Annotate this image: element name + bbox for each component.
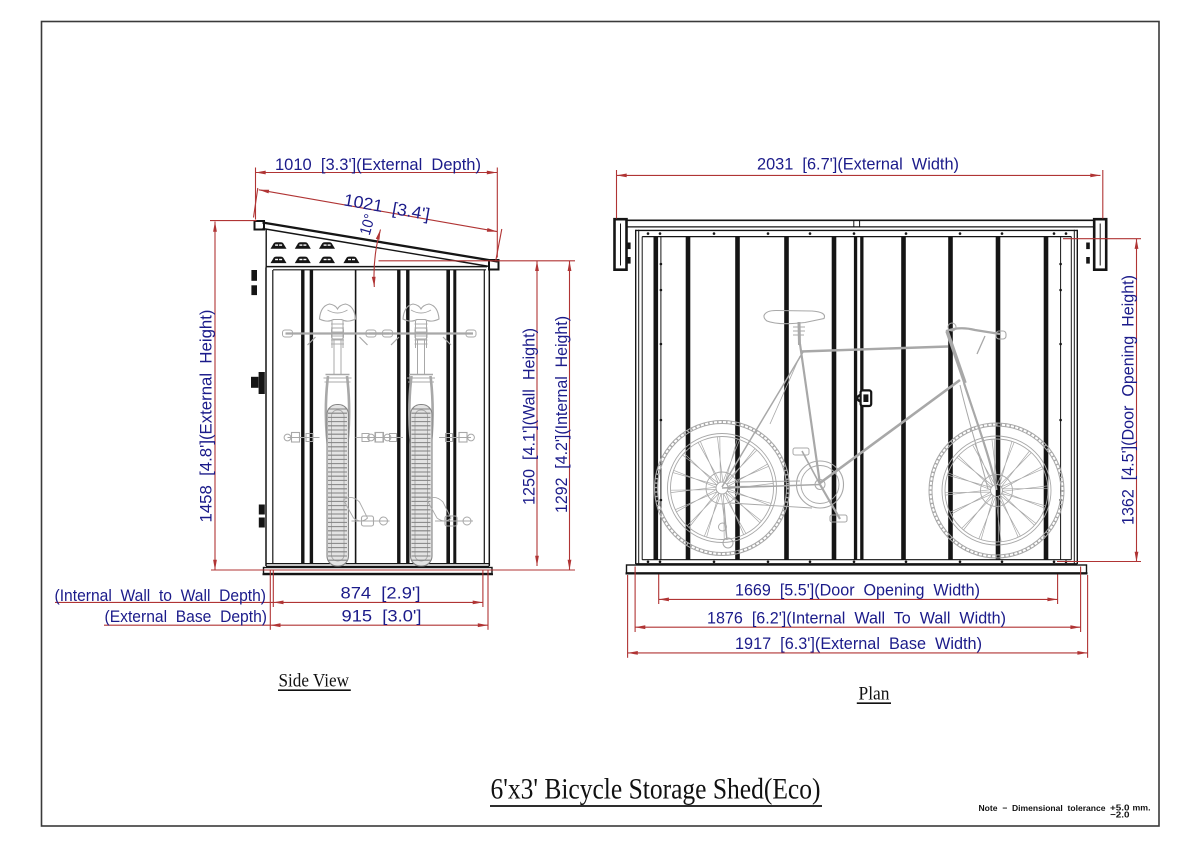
svg-text:1458 [4.8'](External Height): 1458 [4.8'](External Height) <box>197 310 216 523</box>
svg-text:1362 [4.5'](Door Opening He: 1362 [4.5'](Door Opening Height) <box>1119 275 1138 525</box>
svg-text:1292 [4.2'](Internal Height): 1292 [4.2'](Internal Height) <box>552 316 571 513</box>
svg-text:6'x3' Bicycle Storage Shed(Eco: 6'x3' Bicycle Storage Shed(Eco) <box>491 774 821 806</box>
svg-text:mm.: mm. <box>1133 802 1151 812</box>
svg-text:(Internal Wall to Wall Dep: (Internal Wall to Wall Depth) <box>55 586 267 605</box>
svg-text:Plan: Plan <box>859 684 890 705</box>
svg-text:10°: 10° <box>357 212 379 237</box>
svg-text:1021 [3.4']: 1021 [3.4'] <box>342 190 431 224</box>
svg-text:1250 [4.1'](Wall Height): 1250 [4.1'](Wall Height) <box>520 328 539 505</box>
svg-text:1917 [6.3'](External Base W: 1917 [6.3'](External Base Width) <box>735 634 982 653</box>
svg-text:1876 [6.2'](Internal Wall T: 1876 [6.2'](Internal Wall To Wall Width) <box>707 608 1006 627</box>
svg-text:−2.0: −2.0 <box>1110 810 1130 820</box>
svg-text:915 [3.0']: 915 [3.0'] <box>342 606 422 625</box>
svg-text:1669 [5.5'](Door Opening Wi: 1669 [5.5'](Door Opening Width) <box>735 581 980 600</box>
svg-text:Side View: Side View <box>279 671 350 692</box>
svg-text:1010 [3.3'](External Depth): 1010 [3.3'](External Depth) <box>275 155 481 174</box>
svg-text:Note − Dimensional toleranc: Note − Dimensional tolerance <box>979 803 1106 813</box>
svg-text:874 [2.9']: 874 [2.9'] <box>341 583 421 602</box>
svg-text:(External Base Depth): (External Base Depth) <box>105 607 268 626</box>
svg-text:2031 [6.7'](External Width): 2031 [6.7'](External Width) <box>757 154 959 173</box>
